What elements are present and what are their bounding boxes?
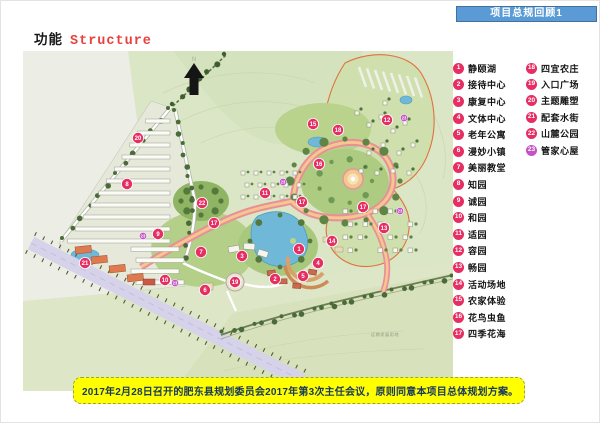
legend-label: 四季花海	[468, 327, 506, 340]
legend-label: 活动场地	[468, 278, 506, 291]
legend-item-21: 21配套水街	[526, 109, 579, 125]
legend-item-9: 9诚园	[453, 193, 506, 210]
legend-item-5: 5老年公寓	[453, 126, 506, 143]
map-marker-11: 11	[259, 187, 270, 198]
legend-number-badge: 17	[453, 328, 464, 339]
legend-item-3: 3康复中心	[453, 93, 506, 110]
legend-item-12: 12容园	[453, 243, 506, 260]
legend-label: 适园	[468, 228, 487, 241]
map-marker-9: 9	[152, 228, 163, 239]
legend-label: 文体中心	[468, 112, 506, 125]
svg-text:22: 22	[199, 201, 206, 207]
legend-number-badge: 15	[453, 295, 464, 306]
svg-text:19: 19	[232, 280, 239, 286]
map-marker-23: 23	[279, 178, 286, 185]
svg-text:21: 21	[82, 261, 89, 267]
legend-item-6: 6漫妙小镇	[453, 143, 506, 160]
legend-number-badge: 16	[453, 312, 464, 323]
legend-item-16: 16花鸟虫鱼	[453, 309, 506, 326]
legend-item-10: 10和园	[453, 209, 506, 226]
map-marker-17: 17	[208, 217, 219, 228]
legend-item-14: 14活动场地	[453, 276, 506, 293]
map-marker-12: 12	[381, 114, 392, 125]
future-land-label: 远期发展用地	[371, 331, 399, 338]
legend-number-badge: 13	[453, 262, 464, 273]
map-marker-7: 7	[195, 246, 206, 257]
map-marker-19: 19	[229, 276, 240, 287]
legend-number-badge: 6	[453, 146, 464, 157]
legend-item-23: 23管家心屋	[526, 142, 579, 158]
legend-number-badge: 12	[453, 245, 464, 256]
svg-text:11: 11	[262, 191, 269, 197]
map-marker-18: 18	[332, 124, 343, 135]
svg-text:13: 13	[381, 226, 388, 232]
map-marker-6: 6	[199, 284, 210, 295]
svg-text:23: 23	[281, 179, 286, 184]
map-marker-14: 14	[326, 235, 337, 246]
svg-text:15: 15	[310, 122, 317, 128]
legend-label: 静颐湖	[468, 62, 497, 75]
legend-number-badge: 7	[453, 162, 464, 173]
map-marker-22: 22	[196, 197, 207, 208]
map-marker-2: 2	[269, 273, 280, 284]
legend-label: 知园	[468, 178, 487, 191]
slide: 项目总规回顾1 功能Structure	[0, 0, 600, 423]
svg-text:14: 14	[329, 239, 336, 245]
legend-item-4: 4文体中心	[453, 110, 506, 127]
legend-number-badge: 18	[526, 63, 537, 74]
legend-number-badge: 2	[453, 79, 464, 90]
map-marker-3: 3	[236, 250, 247, 261]
legend-number-badge: 14	[453, 279, 464, 290]
slide-tag-banner: 项目总规回顾1	[456, 6, 597, 22]
legend-item-17: 17四季花海	[453, 326, 506, 343]
map-marker-13: 13	[378, 222, 389, 233]
svg-text:23: 23	[141, 233, 146, 238]
map-marker-23: 23	[171, 279, 178, 286]
site-plan-illustration: N 远期发展用地 1234567891011121314151617171718…	[23, 51, 453, 391]
legend-number-badge: 1	[453, 63, 464, 74]
legend-label: 和园	[468, 211, 487, 224]
approval-note: 2017年2月28日召开的肥东县规划委员会2017年第3次主任会议，原则同意本项…	[73, 377, 525, 404]
legend-label: 畅园	[468, 261, 487, 274]
north-label: N	[192, 57, 196, 63]
legend-label: 入口广场	[541, 78, 579, 91]
legend-number-badge: 3	[453, 96, 464, 107]
legend-item-20: 20主题雕塑	[526, 93, 579, 109]
legend-number-badge: 19	[526, 79, 537, 90]
map-marker-1: 1	[293, 243, 304, 254]
map-marker-23: 23	[396, 207, 403, 214]
page-title: 功能Structure	[34, 28, 152, 49]
legend-number-badge: 11	[453, 229, 464, 240]
svg-text:12: 12	[384, 118, 391, 124]
legend-item-18: 18四宜农庄	[526, 60, 579, 76]
map-marker-15: 15	[307, 118, 318, 129]
legend-number-badge: 8	[453, 179, 464, 190]
legend-label: 接待中心	[468, 78, 506, 91]
legend-item-19: 19入口广场	[526, 76, 579, 92]
map-marker-4: 4	[312, 257, 323, 268]
svg-text:17: 17	[299, 200, 306, 206]
master-plan-map: N 远期发展用地 1234567891011121314151617171718…	[23, 51, 453, 391]
map-marker-17: 17	[296, 196, 307, 207]
legend-label: 花鸟虫鱼	[468, 311, 506, 324]
map-marker-17: 17	[357, 201, 368, 212]
svg-text:23: 23	[173, 280, 178, 285]
legend-label: 四宜农庄	[541, 62, 579, 75]
map-marker-23: 23	[139, 232, 146, 239]
svg-text:17: 17	[360, 205, 367, 211]
map-marker-16: 16	[313, 158, 324, 169]
svg-text:18: 18	[335, 128, 342, 134]
legend-label: 诚园	[468, 195, 487, 208]
svg-text:16: 16	[316, 162, 323, 168]
legend-number-badge: 9	[453, 196, 464, 207]
map-marker-21: 21	[79, 257, 90, 268]
legend-item-15: 15农家体验	[453, 292, 506, 309]
svg-text:10: 10	[162, 278, 169, 284]
legend-label: 管家心屋	[541, 144, 579, 157]
page-title-zh: 功能	[34, 32, 63, 47]
legend-label: 漫妙小镇	[468, 145, 506, 158]
page-title-en: Structure	[70, 34, 152, 49]
map-marker-20: 20	[132, 132, 143, 143]
svg-text:23: 23	[402, 115, 407, 120]
map-marker-8: 8	[121, 178, 132, 189]
legend-number-badge: 10	[453, 212, 464, 223]
legend-number-badge: 4	[453, 113, 464, 124]
legend-label: 容园	[468, 244, 487, 257]
legend-item-11: 11适园	[453, 226, 506, 243]
legend-column-1: 1静颐湖2接待中心3康复中心4文体中心5老年公寓6漫妙小镇7美丽教堂8知园9诚园…	[453, 60, 506, 342]
legend-column-2: 18四宜农庄19入口广场20主题雕塑21配套水街22山麓公园23管家心屋	[526, 60, 579, 158]
legend-item-22: 22山麓公园	[526, 126, 579, 142]
cluster-pond	[400, 96, 412, 104]
legend-label: 配套水街	[541, 111, 579, 124]
legend-item-13: 13畅园	[453, 259, 506, 276]
legend-label: 主题雕塑	[541, 94, 579, 107]
legend-item-1: 1静颐湖	[453, 60, 506, 77]
legend-number-badge: 23	[526, 145, 537, 156]
legend-item-8: 8知园	[453, 176, 506, 193]
legend-label: 山麓公园	[541, 127, 579, 140]
legend-label: 美丽教堂	[468, 161, 506, 174]
svg-text:20: 20	[135, 136, 142, 142]
legend-item-7: 7美丽教堂	[453, 160, 506, 177]
map-marker-5: 5	[297, 270, 308, 281]
legend-number-badge: 22	[526, 128, 537, 139]
svg-text:23: 23	[398, 208, 403, 213]
legend-item-2: 2接待中心	[453, 77, 506, 94]
legend-number-badge: 20	[526, 95, 537, 106]
legend-label: 农家体验	[468, 294, 506, 307]
legend-label: 康复中心	[468, 95, 506, 108]
map-marker-23: 23	[400, 114, 407, 121]
legend-number-badge: 21	[526, 112, 537, 123]
svg-text:17: 17	[211, 221, 218, 227]
legend-number-badge: 5	[453, 129, 464, 140]
legend-label: 老年公寓	[468, 128, 506, 141]
map-marker-10: 10	[159, 274, 170, 285]
